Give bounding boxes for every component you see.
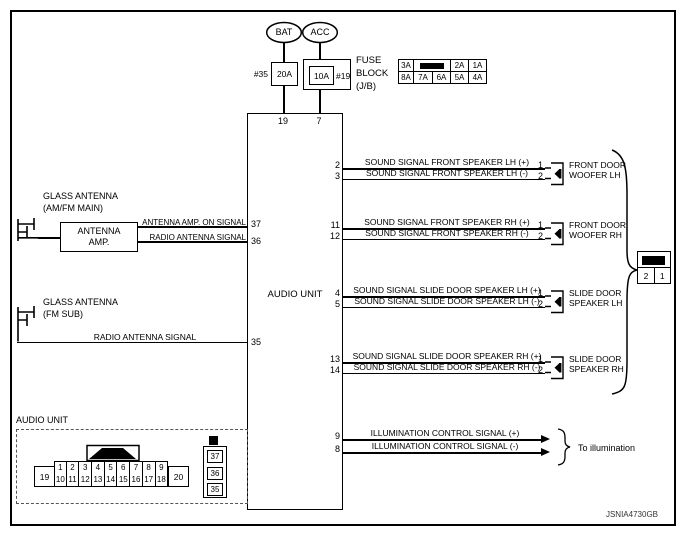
wire (343, 239, 545, 241)
speaker-icon (545, 355, 565, 381)
pin-cell: 14 (105, 474, 118, 488)
illumination-dest-label: To illumination (578, 443, 635, 453)
pin-cell: 6 (117, 461, 130, 475)
brace-icon (556, 428, 572, 466)
signal-label: SOUND SIGNAL FRONT SPEAKER RH (-) (349, 229, 545, 239)
wire-bat-to-unit (283, 85, 285, 113)
antenna-connector-pin-37: 37 (207, 450, 223, 463)
speaker-icon (545, 221, 565, 247)
pin-number: 12 (325, 231, 340, 241)
fuse-cell-8a: 8A (398, 71, 414, 84)
pin-number: 8 (325, 444, 340, 454)
dest-pin-number: 2 (529, 299, 543, 309)
signal-label: ILLUMINATION CONTROL SIGNAL (-) (350, 442, 540, 452)
pin-cell: 5 (105, 461, 118, 475)
signal-label-antenna-amp-on: ANTENNA AMP. ON SIGNAL (118, 218, 246, 227)
fuse-cell-4a: 4A (468, 71, 487, 84)
pin-cell: 17 (143, 474, 156, 488)
pin-number: 13 (325, 354, 340, 364)
pin-cell: 16 (130, 474, 143, 488)
wire-acc-to-unit (319, 89, 321, 113)
wire (343, 307, 545, 309)
pin-cell: 1 (54, 461, 67, 475)
fuse-acc-amp: 10A (309, 71, 334, 81)
door-connector-pin-1: 1 (654, 267, 672, 284)
arrow-icon (541, 448, 550, 456)
glass-antenna-sub-title1: GLASS ANTENNA (43, 297, 118, 307)
signal-label-radio-antenna-sub: RADIO ANTENNA SIGNAL (60, 332, 230, 342)
pin-7: 7 (309, 116, 329, 126)
glass-antenna-icon (12, 303, 44, 343)
fuse-bat-ref: #35 (243, 69, 268, 79)
illumination-circuit: 9 8 ILLUMINATION CONTROL SIGNAL (+) ILLU… (325, 429, 681, 475)
wire (343, 179, 545, 181)
connector-key-icon (642, 256, 665, 265)
pin-cell: 18 (156, 474, 169, 488)
fuse-block-label-line1: FUSE (356, 55, 381, 66)
pin-cell: 4 (92, 461, 105, 475)
wire-bat (283, 43, 285, 62)
dest-pin-number: 1 (529, 220, 543, 230)
fuse-cell-6a: 6A (432, 71, 451, 84)
arrow-icon (541, 435, 550, 443)
signal-label: SOUND SIGNAL SLIDE DOOR SPEAKER LH (+) (349, 286, 545, 296)
pin-number: 2 (325, 160, 340, 170)
wire-antenna-to-amp (38, 237, 60, 239)
dest-pin-number: 2 (529, 171, 543, 181)
pin-cell: 7 (130, 461, 143, 475)
glass-antenna-icon (12, 215, 44, 255)
pin-cell: 15 (117, 474, 130, 488)
connector-key-icon (209, 436, 218, 445)
speaker-icon (545, 161, 565, 187)
fuse-block-label-line2: BLOCK (356, 68, 388, 79)
diagram-id-code: JSNIA4730GB (548, 510, 658, 519)
wire-acc (319, 43, 321, 59)
dest-pin-number: 2 (529, 231, 543, 241)
signal-label-radio-antenna: RADIO ANTENNA SIGNAL (118, 233, 246, 242)
fuse-bat-amp: 20A (271, 69, 298, 79)
signal-label: SOUND SIGNAL FRONT SPEAKER LH (-) (349, 169, 545, 179)
glass-antenna-main-title1: GLASS ANTENNA (43, 191, 118, 201)
pin-cell: 12 (79, 474, 92, 488)
wiring-diagram-page: BAT ACC 20A #35 10A #19 FUSE BLOCK (J/B)… (0, 0, 686, 537)
fuse-cell-5a: 5A (450, 71, 469, 84)
antenna-connector-pin-35: 35 (207, 483, 223, 496)
pin-cell: 3 (79, 461, 92, 475)
wire (343, 373, 545, 375)
brace-icon (609, 147, 639, 397)
pin-cell: 9 (156, 461, 169, 475)
unit-connector-pin-20: 20 (168, 466, 189, 487)
dest-pin-number: 1 (529, 288, 543, 298)
pin-cell: 11 (67, 474, 80, 488)
dest-pin-number: 1 (529, 354, 543, 364)
unit-connector-pin-19: 19 (34, 466, 55, 487)
bat-label: BAT (265, 27, 303, 37)
unit-connector-row-top: 1 2 3 4 5 6 7 8 9 (54, 461, 168, 475)
fuse-cell-7a: 7A (413, 71, 433, 84)
pin-37: 37 (251, 219, 261, 229)
pin-cell: 8 (143, 461, 156, 475)
signal-label: SOUND SIGNAL FRONT SPEAKER RH (+) (349, 218, 545, 228)
pin-cell: 13 (92, 474, 105, 488)
pin-19: 19 (273, 116, 293, 126)
dest-pin-number: 2 (529, 365, 543, 375)
connector-key-icon (86, 444, 140, 462)
speaker-icon (545, 289, 565, 315)
acc-label: ACC (301, 27, 339, 37)
pin-number: 5 (325, 299, 340, 309)
pin-number: 9 (325, 431, 340, 441)
unit-connector-title: AUDIO UNIT (16, 415, 68, 425)
glass-antenna-sub-title2: (FM SUB) (43, 309, 83, 319)
pin-number: 14 (325, 365, 340, 375)
pin-number: 11 (325, 220, 340, 230)
antenna-connector-pin-36: 36 (207, 467, 223, 480)
signal-label: SOUND SIGNAL SLIDE DOOR SPEAKER RH (-) (349, 363, 545, 373)
pin-number: 3 (325, 171, 340, 181)
signal-label: SOUND SIGNAL SLIDE DOOR SPEAKER LH (-) (349, 297, 545, 307)
pin-35: 35 (251, 337, 261, 347)
pin-36: 36 (251, 236, 261, 246)
signal-label: SOUND SIGNAL SLIDE DOOR SPEAKER RH (+) (349, 352, 545, 362)
wire (343, 452, 541, 454)
fuse-acc-ref: #19 (336, 71, 350, 81)
pin-cell: 10 (54, 474, 67, 488)
fuse-block-label-line3: (J/B) (356, 81, 376, 92)
unit-connector-row-bottom: 10 11 12 13 14 15 16 17 18 (54, 474, 168, 488)
door-connector-pin-2: 2 (637, 267, 655, 284)
signal-label: SOUND SIGNAL FRONT SPEAKER LH (+) (349, 158, 545, 168)
pin-cell: 2 (67, 461, 80, 475)
glass-antenna-main-title2: (AM/FM MAIN) (43, 203, 103, 213)
pin-number: 4 (325, 288, 340, 298)
signal-label: ILLUMINATION CONTROL SIGNAL (+) (350, 429, 540, 439)
fuse-slot-filled-icon (420, 63, 444, 70)
dest-pin-number: 1 (529, 160, 543, 170)
